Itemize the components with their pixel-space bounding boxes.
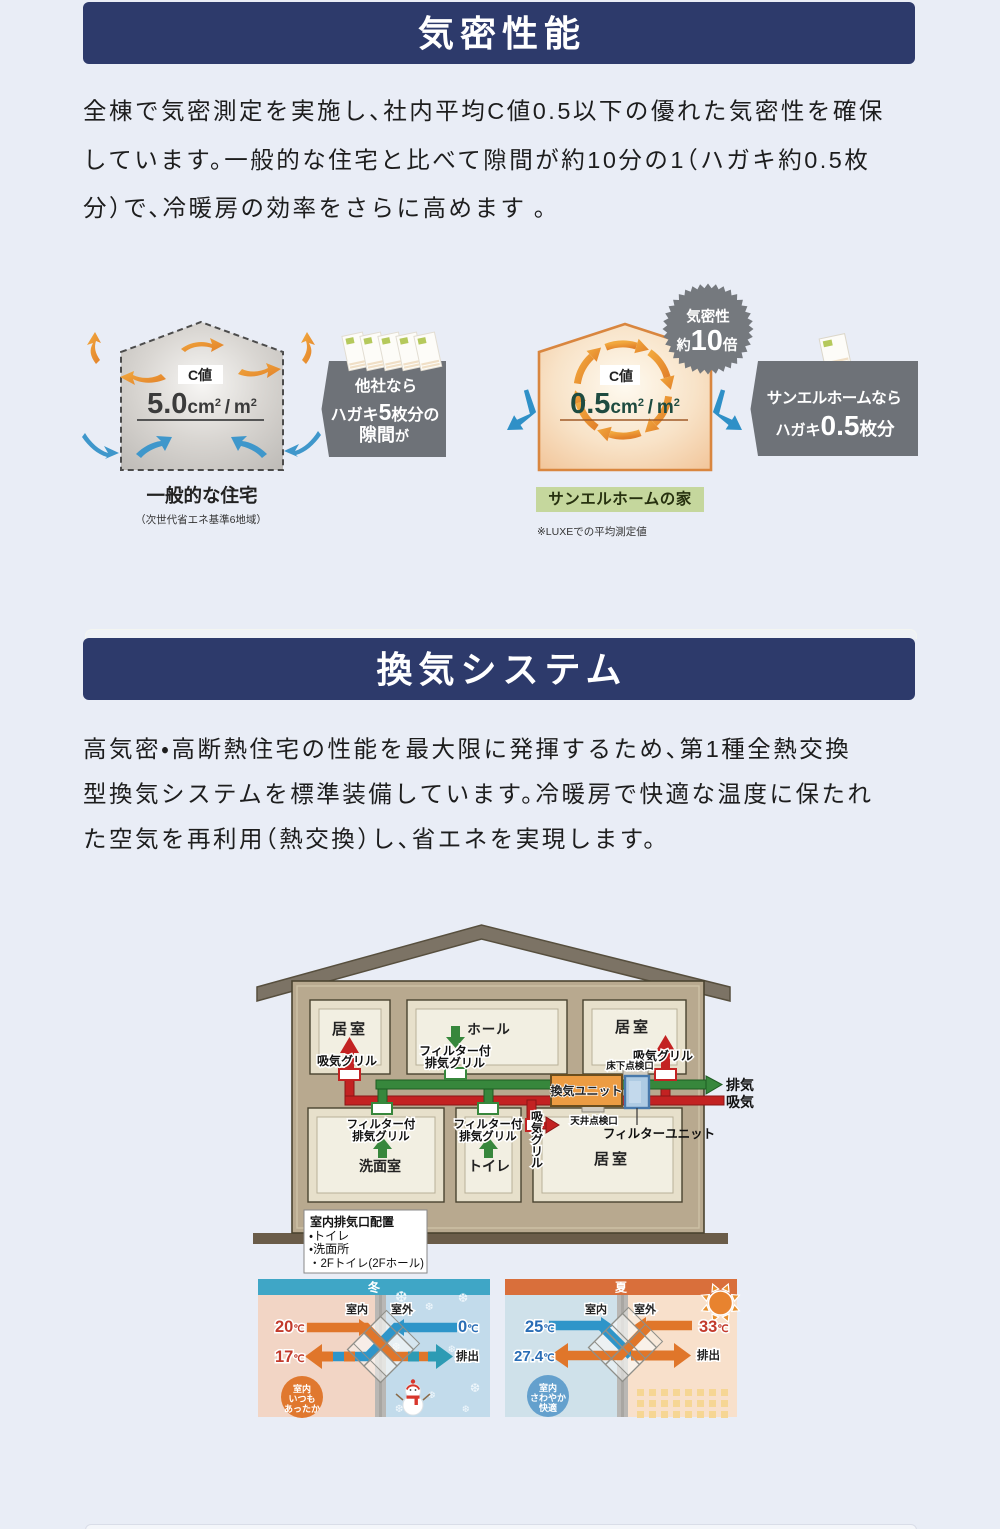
- svg-text:排気グリル: 排気グリル: [459, 1129, 517, 1143]
- svg-text:サンエルホームなら: サンエルホームなら: [767, 389, 902, 407]
- svg-text:室内: 室内: [539, 1382, 557, 1393]
- svg-text:室内: 室内: [293, 1383, 311, 1394]
- svg-text:※LUXEでの平均測定値: ※LUXEでの平均測定値: [537, 525, 647, 538]
- svg-text:他社なら: 他社なら: [354, 376, 417, 395]
- svg-text:（次世代省エネ基準6地域）: （次世代省エネ基準6地域）: [135, 513, 267, 526]
- svg-text:フィルター付: フィルター付: [454, 1117, 523, 1131]
- svg-text:ル: ル: [531, 1156, 543, 1170]
- svg-text:洗面室: 洗面室: [359, 1158, 401, 1174]
- svg-text:隙間が: 隙間が: [359, 424, 410, 445]
- svg-text:室内: 室内: [346, 1302, 368, 1316]
- svg-text:天井点検口: 天井点検口: [569, 1115, 618, 1127]
- svg-text:❆: ❆: [395, 1289, 408, 1306]
- svg-text:排気グリル: 排気グリル: [425, 1055, 485, 1070]
- svg-text:排出: 排出: [697, 1348, 720, 1362]
- svg-text:サンエルホームの家: サンエルホームの家: [548, 489, 692, 508]
- svg-text:居室: 居室: [594, 1150, 630, 1168]
- svg-text:排気グリル: 排気グリル: [352, 1129, 410, 1143]
- svg-text:フィルターユニット: フィルターユニット: [603, 1126, 715, 1141]
- svg-text:❆: ❆: [458, 1291, 468, 1305]
- svg-text:あったか: あったか: [284, 1404, 320, 1414]
- svg-text:❆: ❆: [470, 1381, 480, 1395]
- svg-text:❆: ❆: [395, 1404, 403, 1415]
- svg-text:室内排気口配置: 室内排気口配置: [310, 1214, 394, 1229]
- svg-text:排気: 排気: [726, 1077, 754, 1093]
- svg-text:ホール: ホール: [467, 1022, 511, 1037]
- svg-text:室内: 室内: [585, 1302, 607, 1316]
- svg-text:吸気グリル: 吸気グリル: [317, 1053, 377, 1068]
- svg-text:吸気: 吸気: [726, 1094, 754, 1110]
- svg-text:室外: 室外: [634, 1302, 657, 1316]
- svg-text:気密性: 気密性: [686, 308, 730, 326]
- svg-text:・洗面所: ・洗面所: [309, 1242, 349, 1256]
- svg-text:居室: 居室: [332, 1020, 368, 1038]
- svg-text:床下点検口: 床下点検口: [606, 1060, 654, 1072]
- svg-text:❆: ❆: [448, 1344, 456, 1354]
- svg-text:いつも: いつも: [288, 1394, 315, 1404]
- svg-text:トイレ: トイレ: [468, 1158, 510, 1174]
- svg-text:C値: C値: [188, 367, 212, 383]
- svg-text:排出: 排出: [456, 1349, 479, 1363]
- svg-text:・トイレ: ・トイレ: [309, 1229, 349, 1243]
- svg-text:❆: ❆: [462, 1404, 470, 1414]
- svg-text:C値: C値: [609, 368, 633, 384]
- svg-text:冬: 冬: [367, 1280, 381, 1295]
- svg-text:フィルター付: フィルター付: [347, 1117, 416, 1131]
- svg-text:さわやか: さわやか: [530, 1393, 566, 1403]
- svg-text:夏: 夏: [615, 1281, 628, 1295]
- svg-text:居室: 居室: [615, 1018, 651, 1036]
- svg-text:一般的な住宅: 一般的な住宅: [146, 485, 257, 506]
- svg-text:快適: 快適: [539, 1402, 557, 1413]
- svg-text:❆: ❆: [425, 1302, 433, 1313]
- svg-text:換気ユニット: 換気ユニット: [550, 1083, 622, 1098]
- svg-text:・2Fトイレ(2Fホール): ・2Fトイレ(2Fホール): [309, 1257, 424, 1270]
